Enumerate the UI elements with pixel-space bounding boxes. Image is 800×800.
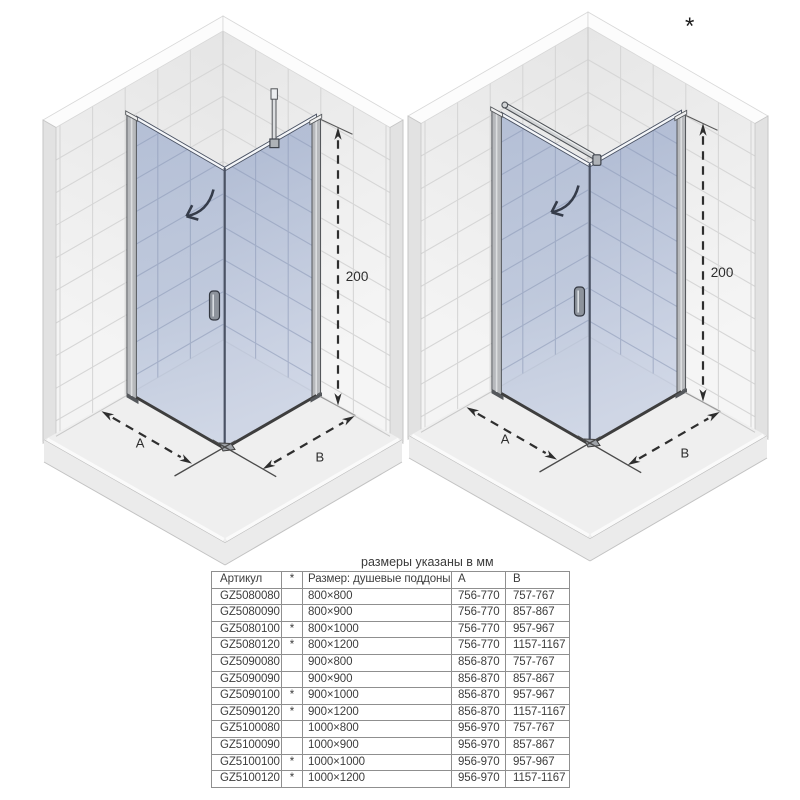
svg-text:200: 200 xyxy=(346,269,369,284)
svg-text:A: A xyxy=(136,436,145,451)
svg-text:200: 200 xyxy=(711,265,734,280)
svg-text:B: B xyxy=(681,446,690,461)
svg-text:A: A xyxy=(501,432,510,447)
svg-text:B: B xyxy=(316,450,325,465)
